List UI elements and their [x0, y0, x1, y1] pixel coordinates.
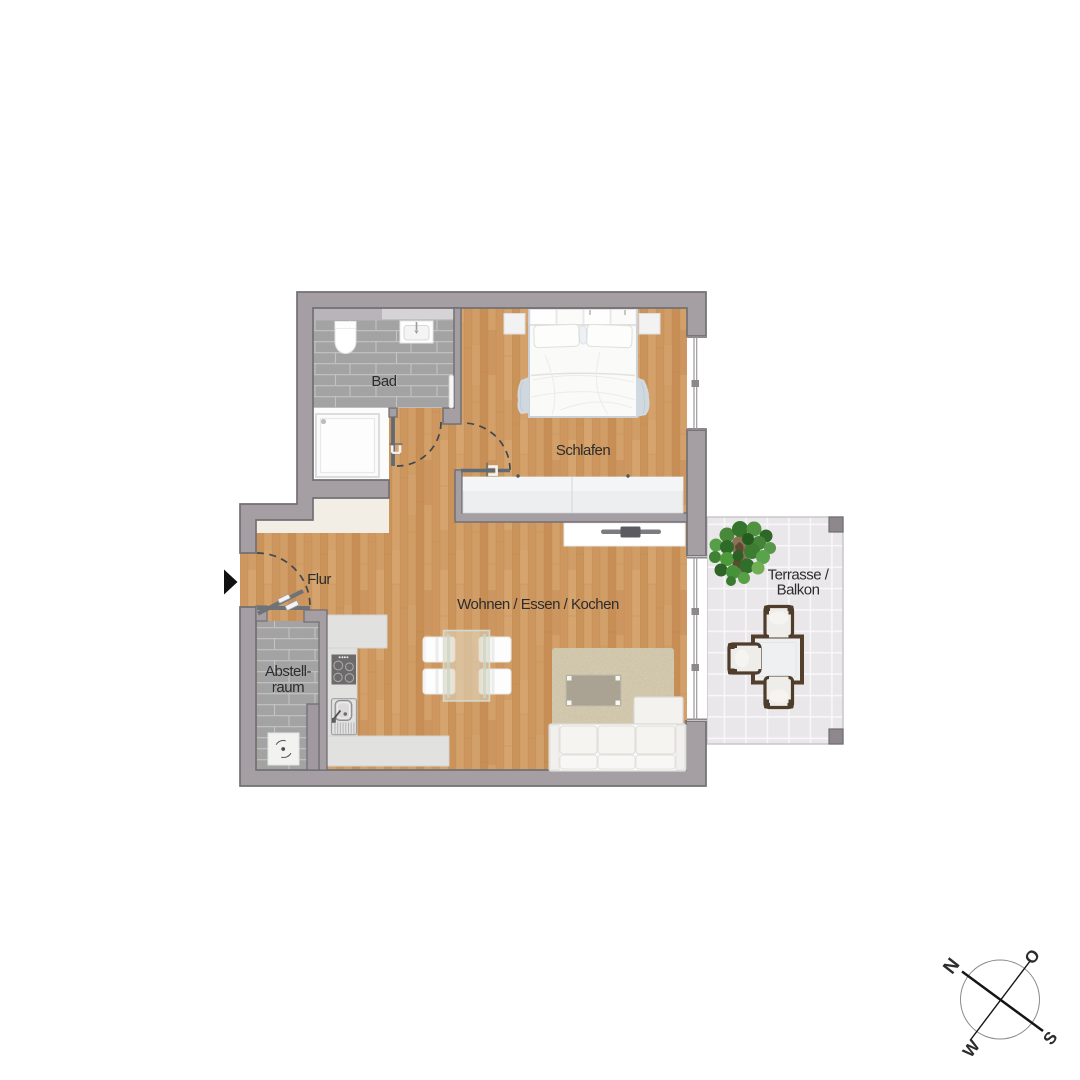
svg-text:Flur: Flur	[307, 571, 331, 588]
svg-text:Bad: Bad	[371, 373, 396, 390]
svg-text:raum: raum	[272, 679, 304, 696]
svg-text:Wohnen / Essen / Kochen: Wohnen / Essen / Kochen	[457, 596, 619, 613]
svg-text:Balkon: Balkon	[777, 582, 820, 599]
svg-text:Abstell-: Abstell-	[265, 663, 312, 680]
svg-text:Schlafen: Schlafen	[556, 442, 611, 459]
